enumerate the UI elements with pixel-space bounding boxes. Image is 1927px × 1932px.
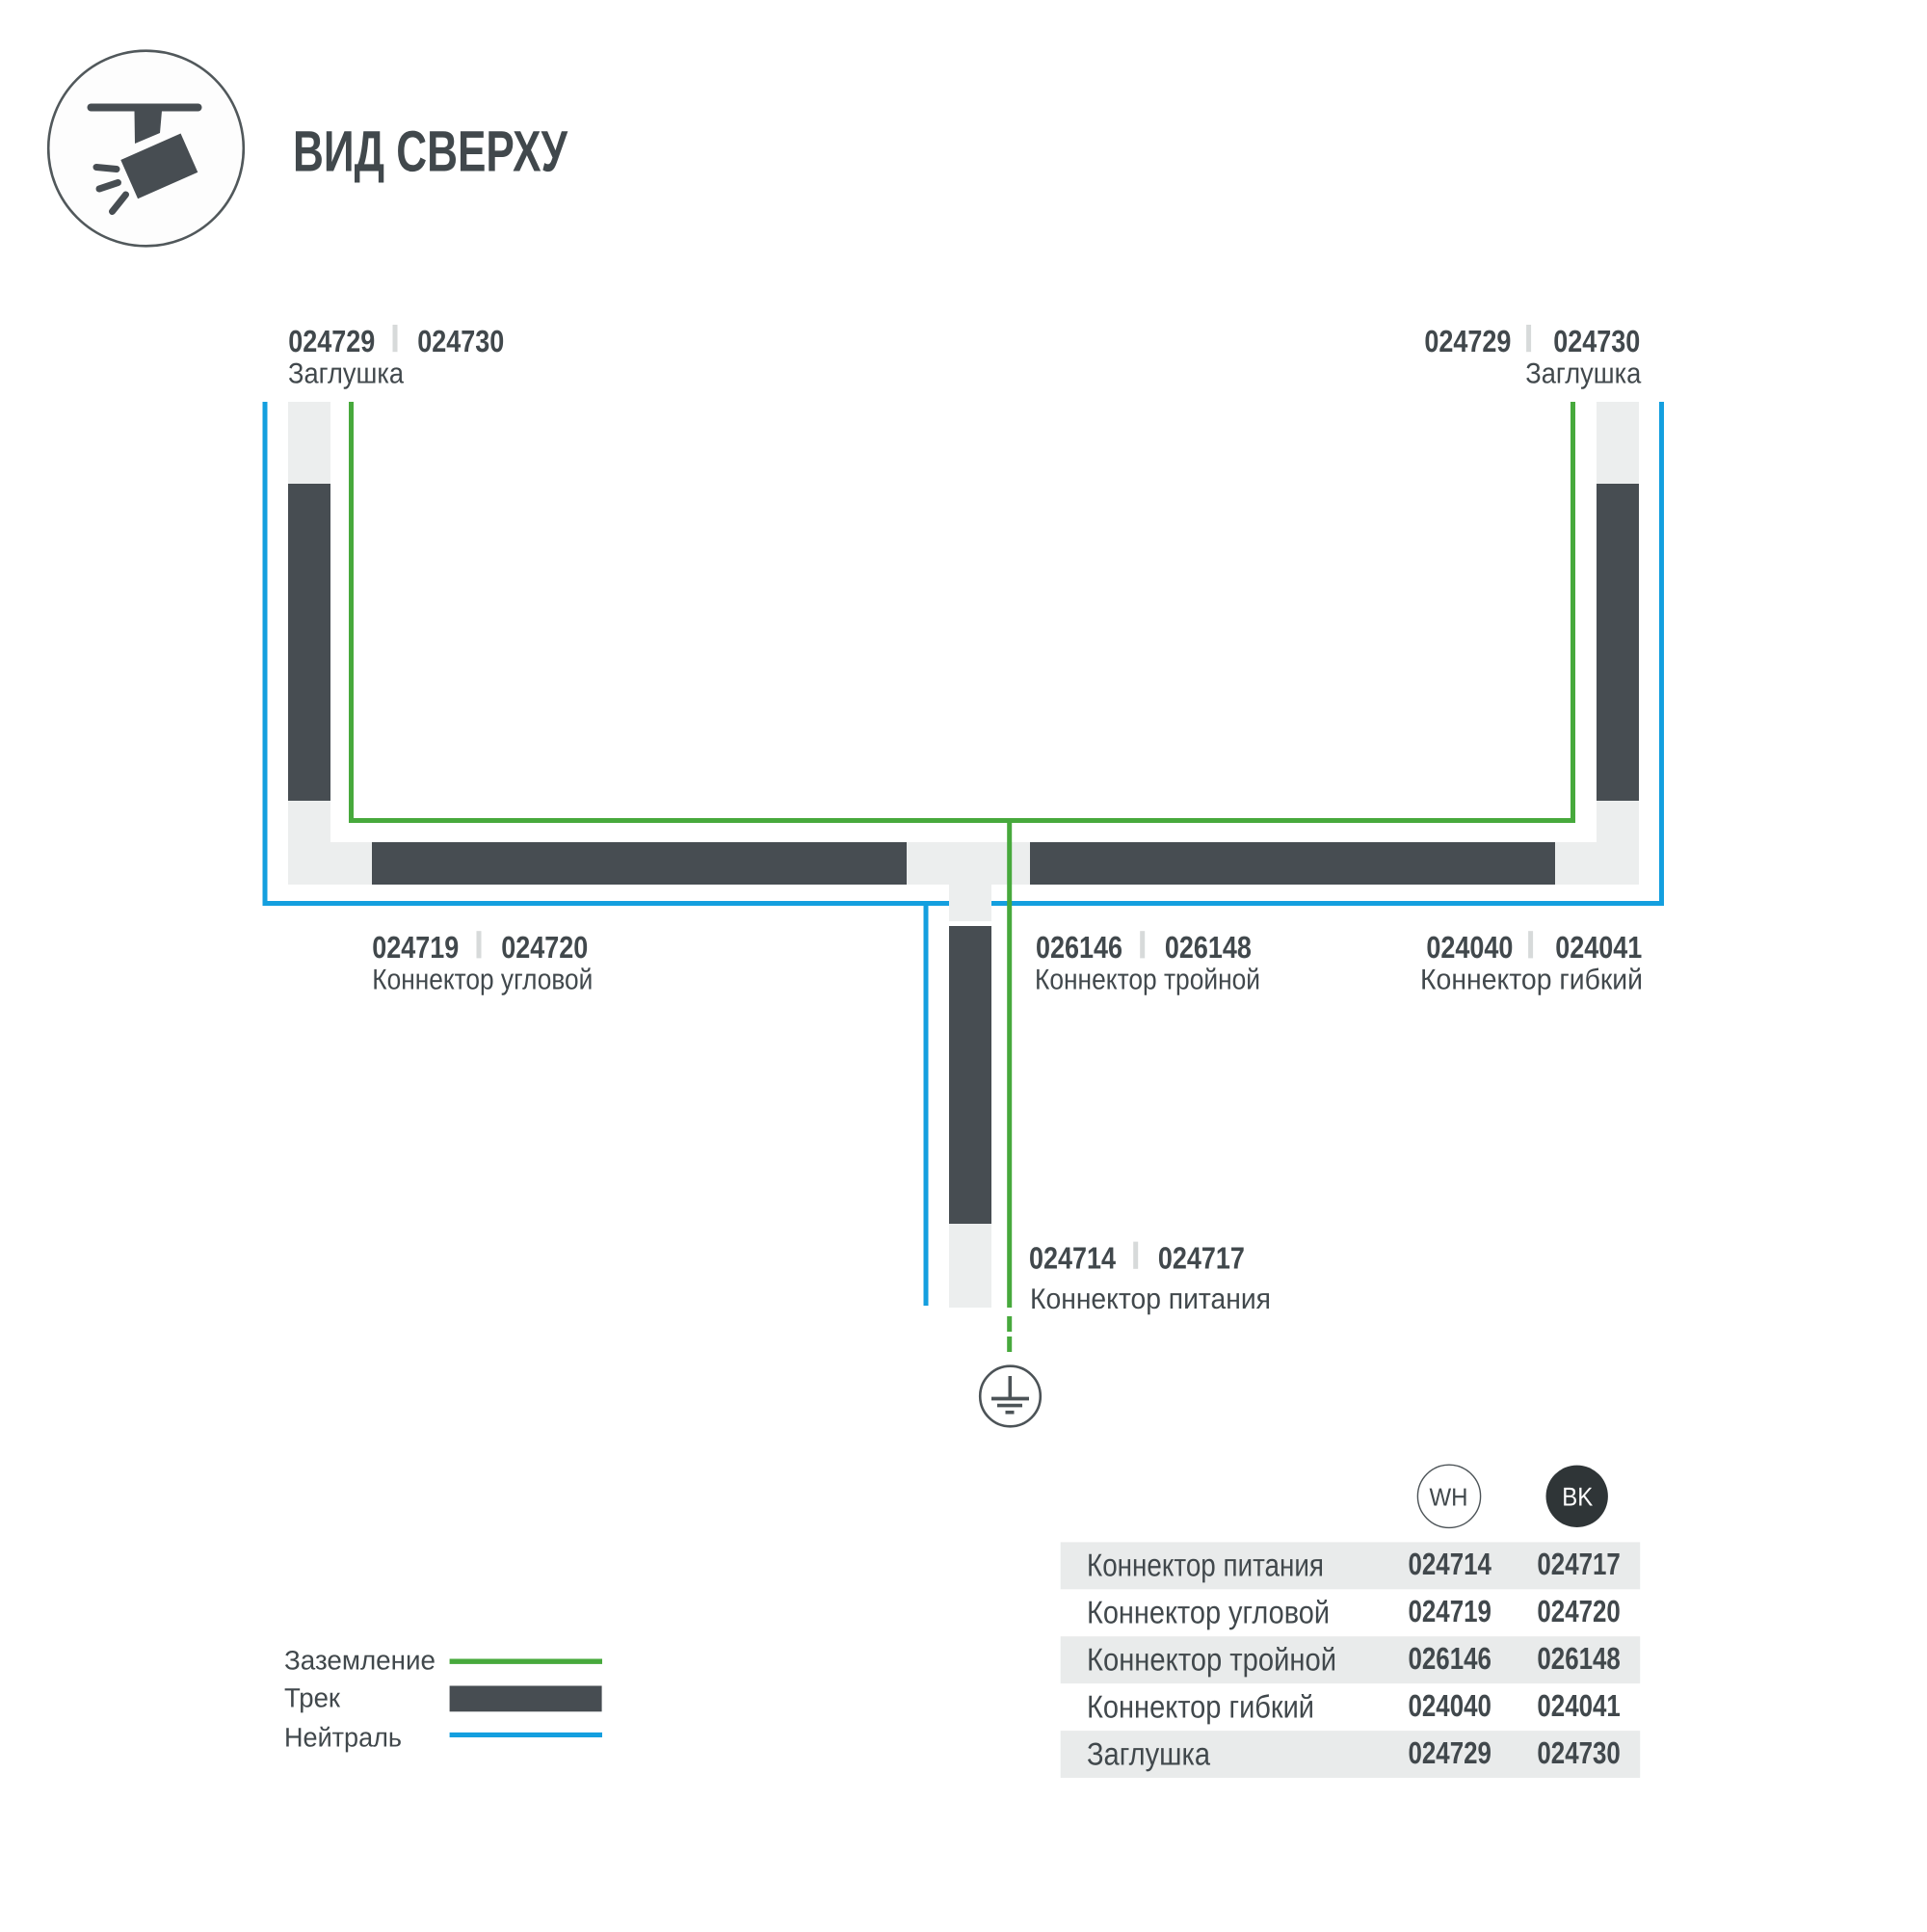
svg-text:ВИД СВЕРХУ: ВИД СВЕРХУ	[293, 119, 568, 184]
svg-text:026146: 026146	[1036, 930, 1122, 965]
svg-text:024729: 024729	[1424, 324, 1511, 358]
svg-text:024719: 024719	[372, 930, 459, 965]
svg-text:024714: 024714	[1029, 1240, 1116, 1275]
svg-text:024040: 024040	[1409, 1688, 1491, 1723]
svg-text:024730: 024730	[417, 324, 504, 358]
svg-text:024040: 024040	[1426, 930, 1513, 965]
svg-text:Заглушка: Заглушка	[1087, 1735, 1211, 1771]
svg-text:024720: 024720	[1537, 1594, 1620, 1628]
svg-text:026148: 026148	[1165, 930, 1252, 965]
svg-text:Заземление: Заземление	[284, 1646, 436, 1676]
svg-text:024717: 024717	[1158, 1240, 1245, 1275]
svg-text:WH: WH	[1430, 1482, 1468, 1511]
svg-text:Заглушка: Заглушка	[288, 358, 404, 390]
svg-text:024041: 024041	[1555, 930, 1642, 965]
svg-text:Коннектор гибкий: Коннектор гибкий	[1087, 1688, 1314, 1724]
svg-text:024720: 024720	[501, 930, 588, 965]
svg-text:Нейтраль: Нейтраль	[284, 1722, 402, 1752]
svg-text:026146: 026146	[1409, 1641, 1491, 1676]
svg-text:Коннектор питания: Коннектор питания	[1087, 1548, 1324, 1583]
svg-text:024717: 024717	[1537, 1547, 1620, 1581]
svg-text:Коннектор гибкий: Коннектор гибкий	[1420, 964, 1643, 995]
svg-text:024729: 024729	[288, 324, 375, 358]
svg-text:BK: BK	[1562, 1482, 1593, 1511]
svg-text:Коннектор угловой: Коннектор угловой	[372, 964, 593, 995]
svg-text:Заглушка: Заглушка	[1525, 358, 1641, 390]
svg-text:024714: 024714	[1409, 1547, 1492, 1581]
svg-text:Коннектор тройной: Коннектор тройной	[1035, 964, 1260, 995]
svg-text:Коннектор тройной: Коннектор тройной	[1087, 1641, 1336, 1677]
svg-text:Трек: Трек	[284, 1683, 341, 1713]
svg-text:024730: 024730	[1537, 1735, 1620, 1770]
svg-text:024729: 024729	[1409, 1735, 1491, 1770]
svg-text:024719: 024719	[1409, 1594, 1491, 1628]
svg-text:Коннектор питания: Коннектор питания	[1030, 1284, 1271, 1315]
svg-text:024041: 024041	[1537, 1688, 1620, 1723]
svg-text:Коннектор угловой: Коннектор угловой	[1087, 1595, 1330, 1630]
svg-text:024730: 024730	[1553, 324, 1640, 358]
svg-text:026148: 026148	[1537, 1641, 1620, 1676]
